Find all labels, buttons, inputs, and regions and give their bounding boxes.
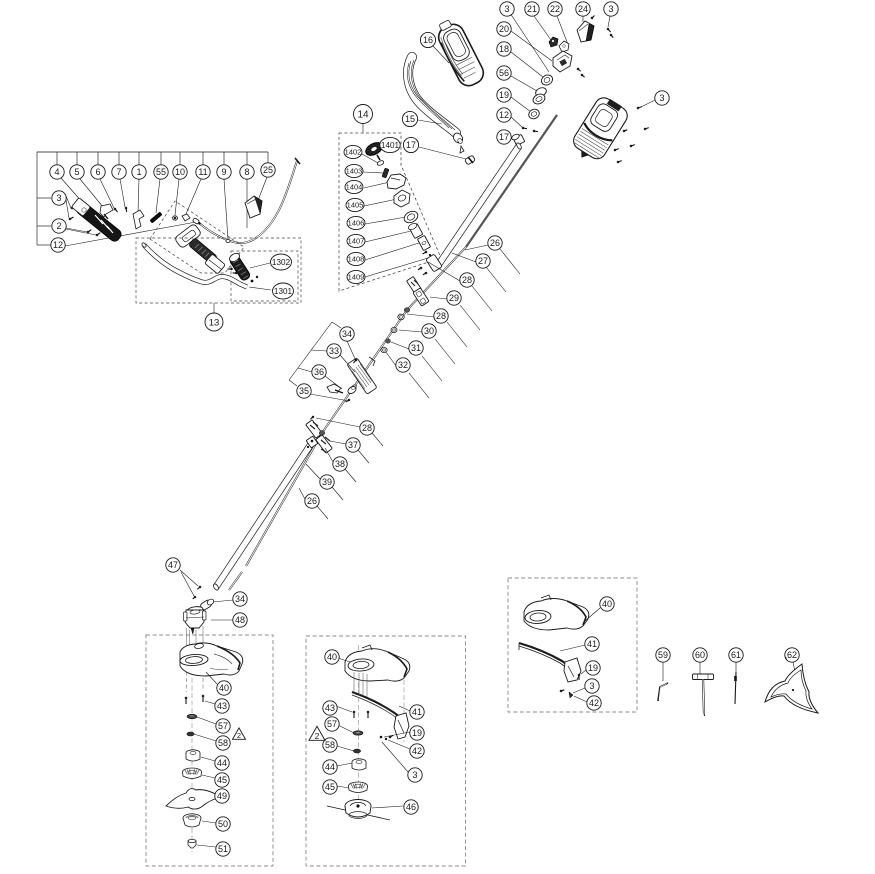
svg-text:28: 28 bbox=[362, 423, 372, 433]
svg-text:17: 17 bbox=[406, 140, 416, 150]
svg-text:45: 45 bbox=[217, 775, 227, 785]
svg-text:38: 38 bbox=[335, 459, 345, 469]
svg-text:1401: 1401 bbox=[381, 141, 400, 150]
svg-text:3: 3 bbox=[412, 770, 417, 780]
svg-text:3: 3 bbox=[659, 93, 664, 103]
svg-text:26: 26 bbox=[490, 238, 500, 248]
svg-text:33: 33 bbox=[329, 346, 339, 356]
svg-text:18: 18 bbox=[499, 44, 509, 54]
svg-text:12: 12 bbox=[53, 240, 63, 250]
svg-text:28: 28 bbox=[436, 311, 446, 321]
svg-text:46: 46 bbox=[406, 802, 416, 812]
svg-text:8: 8 bbox=[244, 167, 249, 177]
svg-text:60: 60 bbox=[695, 650, 705, 660]
svg-text:19: 19 bbox=[588, 663, 598, 673]
svg-text:59: 59 bbox=[658, 650, 668, 660]
svg-text:40: 40 bbox=[327, 652, 337, 662]
svg-text:34: 34 bbox=[342, 329, 352, 339]
svg-text:25: 25 bbox=[263, 165, 273, 175]
svg-text:40: 40 bbox=[602, 599, 612, 609]
svg-text:19: 19 bbox=[499, 90, 509, 100]
svg-text:41: 41 bbox=[587, 639, 597, 649]
svg-text:51: 51 bbox=[218, 844, 228, 854]
svg-text:32: 32 bbox=[398, 360, 408, 370]
svg-text:16: 16 bbox=[423, 35, 433, 45]
svg-text:27: 27 bbox=[478, 256, 488, 266]
svg-text:41: 41 bbox=[412, 707, 422, 717]
svg-text:20: 20 bbox=[499, 24, 509, 34]
svg-text:57: 57 bbox=[218, 721, 228, 731]
svg-text:22: 22 bbox=[550, 4, 560, 14]
svg-text:1302: 1302 bbox=[272, 258, 291, 267]
svg-text:1405: 1405 bbox=[347, 201, 364, 210]
svg-text:3: 3 bbox=[56, 193, 61, 203]
svg-text:3: 3 bbox=[589, 681, 594, 691]
svg-text:1403: 1403 bbox=[346, 167, 363, 176]
svg-text:24: 24 bbox=[578, 4, 588, 14]
svg-text:6: 6 bbox=[95, 167, 100, 177]
svg-text:48: 48 bbox=[235, 615, 245, 625]
svg-text:36: 36 bbox=[314, 367, 324, 377]
svg-text:26: 26 bbox=[307, 496, 317, 506]
svg-text:39: 39 bbox=[322, 477, 332, 487]
svg-text:1407: 1407 bbox=[348, 237, 365, 246]
svg-text:50: 50 bbox=[218, 819, 228, 829]
svg-text:2: 2 bbox=[237, 731, 241, 740]
svg-text:17: 17 bbox=[499, 132, 509, 142]
svg-text:7: 7 bbox=[116, 167, 121, 177]
svg-text:42: 42 bbox=[589, 698, 599, 708]
svg-text:9: 9 bbox=[221, 167, 226, 177]
svg-text:57: 57 bbox=[327, 719, 337, 729]
svg-text:34: 34 bbox=[235, 594, 245, 604]
svg-text:1406: 1406 bbox=[348, 219, 365, 228]
svg-text:2: 2 bbox=[56, 221, 61, 231]
svg-text:13: 13 bbox=[209, 317, 220, 328]
svg-text:44: 44 bbox=[217, 758, 227, 768]
svg-text:12: 12 bbox=[499, 110, 509, 120]
svg-text:58: 58 bbox=[325, 740, 335, 750]
svg-text:2: 2 bbox=[315, 731, 320, 741]
svg-text:3: 3 bbox=[608, 4, 613, 14]
svg-text:55: 55 bbox=[156, 167, 166, 177]
svg-text:43: 43 bbox=[217, 701, 227, 711]
svg-text:14: 14 bbox=[357, 110, 369, 121]
svg-text:43: 43 bbox=[325, 703, 335, 713]
svg-text:1: 1 bbox=[136, 167, 141, 177]
svg-text:5: 5 bbox=[74, 167, 79, 177]
svg-text:49: 49 bbox=[217, 791, 227, 801]
svg-text:29: 29 bbox=[449, 293, 459, 303]
svg-text:1301: 1301 bbox=[274, 287, 293, 296]
svg-text:62: 62 bbox=[787, 650, 797, 660]
svg-text:28: 28 bbox=[462, 275, 472, 285]
svg-text:30: 30 bbox=[424, 326, 434, 336]
svg-text:35: 35 bbox=[299, 386, 309, 396]
svg-text:4: 4 bbox=[54, 167, 59, 177]
svg-text:37: 37 bbox=[348, 440, 358, 450]
svg-text:3: 3 bbox=[504, 4, 509, 14]
svg-text:11: 11 bbox=[198, 167, 207, 177]
svg-text:15: 15 bbox=[405, 114, 415, 124]
svg-text:31: 31 bbox=[411, 343, 421, 353]
svg-text:44: 44 bbox=[325, 762, 335, 772]
svg-text:10: 10 bbox=[175, 167, 185, 177]
svg-text:19: 19 bbox=[412, 728, 422, 738]
svg-text:56: 56 bbox=[499, 68, 509, 78]
svg-text:21: 21 bbox=[527, 4, 537, 14]
svg-text:47: 47 bbox=[168, 560, 178, 570]
svg-text:40: 40 bbox=[219, 683, 229, 693]
svg-text:1409: 1409 bbox=[348, 273, 365, 282]
svg-text:1408: 1408 bbox=[348, 255, 365, 264]
svg-text:1402: 1402 bbox=[345, 148, 362, 157]
svg-text:1404: 1404 bbox=[346, 183, 363, 192]
svg-text:45: 45 bbox=[325, 782, 335, 792]
svg-text:42: 42 bbox=[412, 746, 422, 756]
svg-text:58: 58 bbox=[218, 738, 228, 748]
svg-text:61: 61 bbox=[731, 650, 741, 660]
